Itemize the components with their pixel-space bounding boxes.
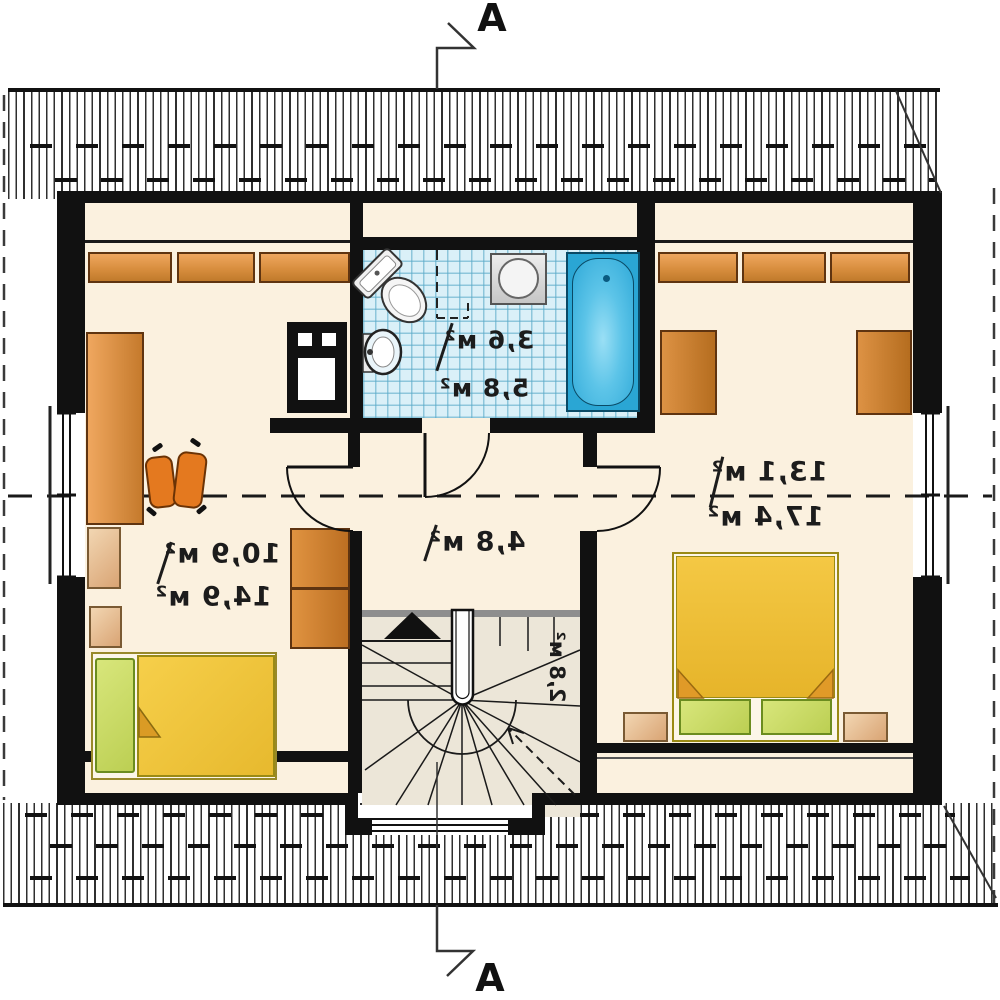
bedroom-right-area-total: 17,4 м² bbox=[707, 502, 824, 533]
section-marker-bottom: A bbox=[475, 956, 504, 1000]
sink bbox=[363, 330, 401, 374]
bedroom-left-area-floor: 10,9 м² bbox=[164, 539, 281, 570]
staircase-area-floor: 2,8 м² bbox=[545, 632, 569, 703]
linework-layer bbox=[0, 0, 1000, 1000]
toilet bbox=[352, 248, 440, 336]
bedroom-left-area-total: 14,9 м² bbox=[155, 582, 272, 613]
bathroom-area-floor: 3,6 м² bbox=[444, 326, 534, 355]
floor-plan: A A 10,9 м² 14,9 м² 3,6 м² 5,8 м² 4,8 м²… bbox=[0, 0, 1000, 1000]
bedroom-right-area-floor: 13,1 м² bbox=[711, 457, 828, 488]
section-marker-top: A bbox=[477, 0, 506, 40]
hall-area-floor: 4,8 м² bbox=[428, 527, 525, 558]
bathroom-area-total: 5,8 м² bbox=[439, 374, 529, 403]
